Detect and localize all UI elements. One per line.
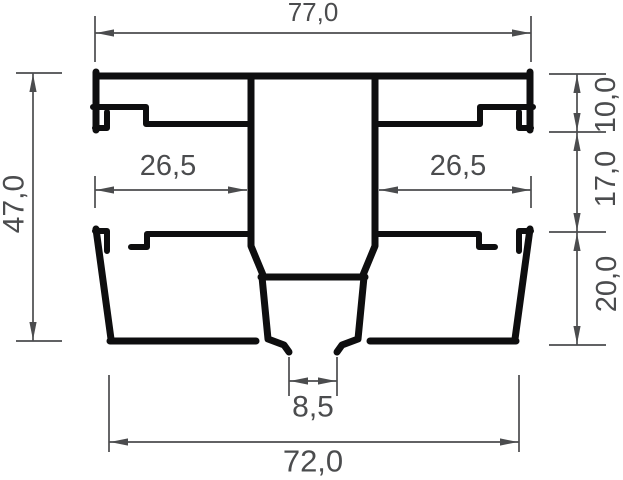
profile-left-leg-foot [262,277,289,352]
arrow-left-icon [96,186,114,193]
arrow-right-icon [500,438,518,445]
dim-label-bottom-width: 72,0 [283,444,343,479]
profile-bottom-right-chamber-top [375,234,495,247]
arrow-down-icon [573,326,580,344]
arrow-right-icon [228,186,246,193]
arrow-right-icon [512,186,530,193]
dim-label-overall-height: 47,0 [0,175,31,233]
dim-label-right-chamber-width: 26,5 [430,150,486,182]
dimension-arrowheads [29,29,580,445]
arrow-up-icon [573,233,580,251]
arrow-left-icon [96,29,114,36]
arrow-left-icon [110,438,128,445]
profile-left-flange-bottom [93,107,251,124]
dim-label-bottom-gap-width: 8,5 [292,391,334,424]
profile-right-flange-bottom [375,107,533,124]
dim-label-middle-section-height: 17,0 [590,151,622,207]
arrow-up-icon [573,133,580,151]
dim-label-bottom-section-height: 20,0 [591,256,623,312]
dim-label-top-section-height: 10,0 [590,77,622,133]
arrow-down-icon [573,113,580,131]
profile-web-right [363,77,375,275]
arrow-up-icon [573,75,580,93]
dim-label-left-chamber-width: 26,5 [140,150,196,182]
drawing-canvas: 77,0 26,5 26,5 47,0 10,0 17,0 20,0 8,5 7… [0,0,623,480]
profile-outline [93,72,533,352]
arrow-left-icon [290,377,308,384]
dim-label-top-width: 77,0 [288,0,339,27]
arrow-up-icon [29,74,36,92]
technical-drawing: 77,0 26,5 26,5 47,0 10,0 17,0 20,0 8,5 7… [0,0,623,480]
profile-right-leg-foot [337,277,364,352]
profile-web-left [251,77,263,275]
arrow-down-icon [573,213,580,231]
arrow-left-icon [380,186,398,193]
arrow-down-icon [29,322,36,340]
arrow-right-icon [512,29,530,36]
profile-bottom-left-chamber-top [131,234,251,247]
arrow-right-icon [318,377,336,384]
